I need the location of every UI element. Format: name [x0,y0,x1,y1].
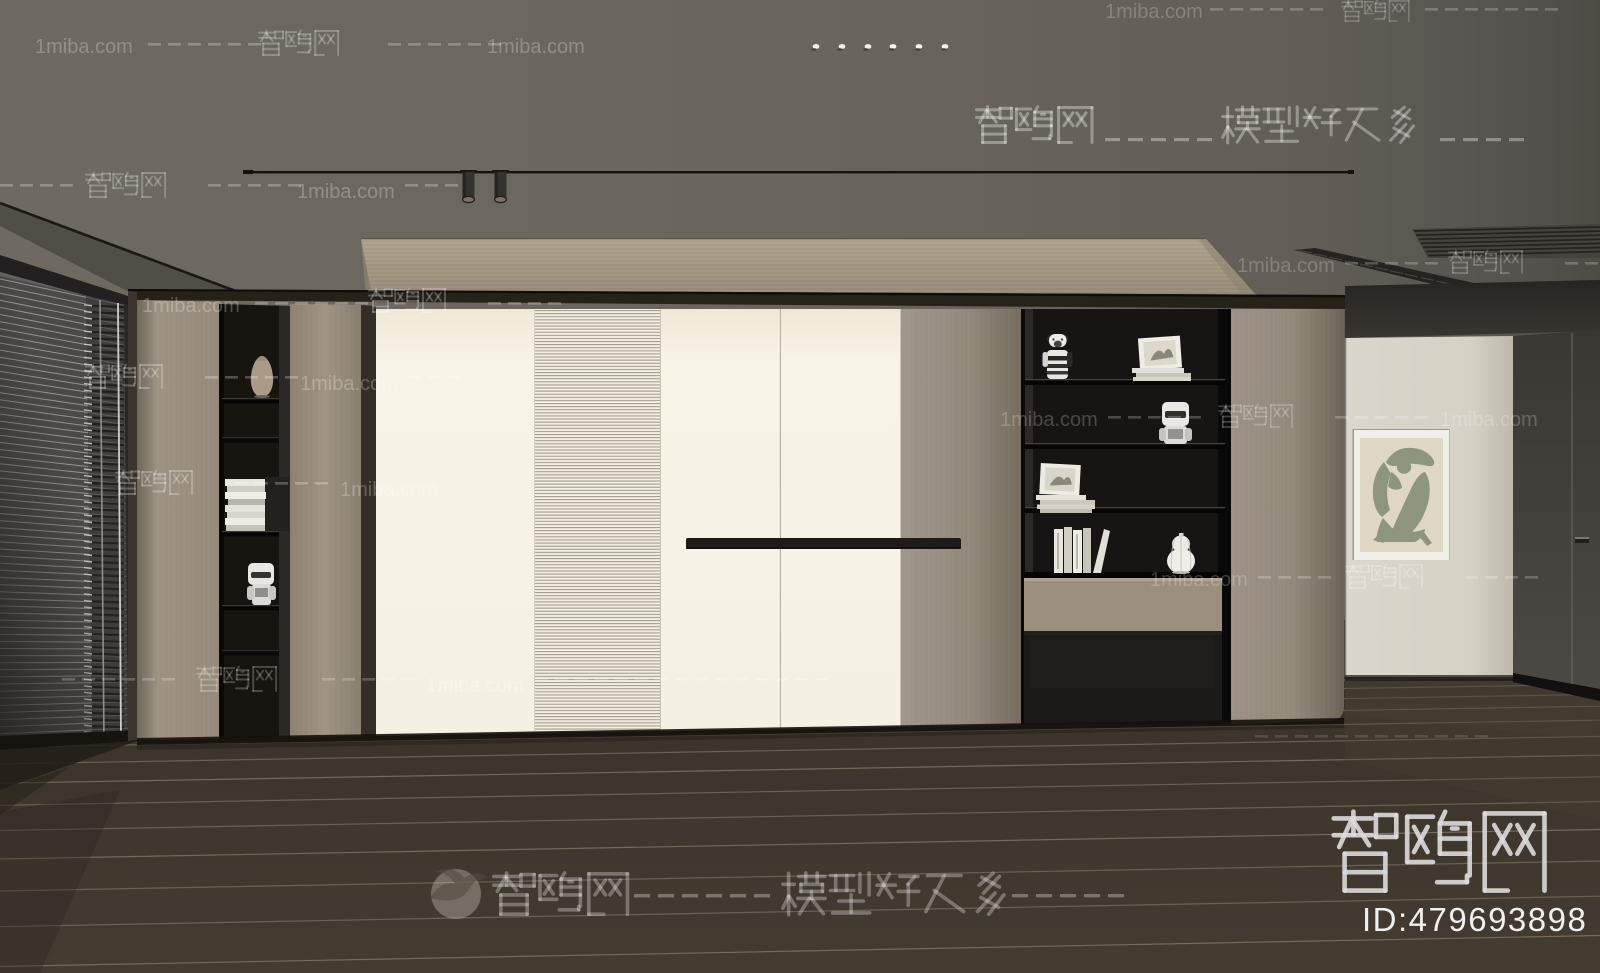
svg-text:1miba.com: 1miba.com [1000,409,1098,431]
svg-text:1miba.com: 1miba.com [35,36,133,58]
svg-text:1miba.com: 1miba.com [142,295,240,317]
svg-text:1miba.com: 1miba.com [487,36,585,58]
svg-text:1miba.com: 1miba.com [297,181,395,203]
svg-text:1miba.com: 1miba.com [300,373,398,395]
svg-text:1miba.com: 1miba.com [426,675,524,697]
svg-text:1miba.com: 1miba.com [1440,409,1538,431]
svg-text:1miba.com: 1miba.com [340,479,438,501]
svg-text:1miba.com: 1miba.com [1237,255,1335,277]
svg-text:1miba.com: 1miba.com [1105,1,1203,23]
svg-text:1miba.com: 1miba.com [1150,569,1248,591]
svg-text:ID:479693898: ID:479693898 [1362,901,1587,938]
